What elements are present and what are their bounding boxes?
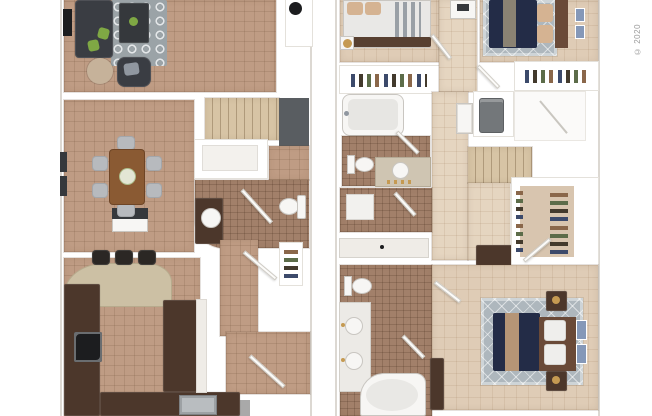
- wall-art-frame: [576, 320, 587, 340]
- appliance-pad: [347, 195, 373, 219]
- exterior-wall-edge-right: [310, 0, 312, 416]
- dresser-decor: [457, 4, 469, 11]
- side-table: [87, 58, 113, 84]
- counter-fixture-dot: [380, 245, 384, 249]
- vanity-faucets: [387, 180, 411, 184]
- sink-faucet: [341, 358, 345, 362]
- wall-art-frame: [60, 176, 67, 196]
- stair-void: [515, 92, 585, 140]
- kitchen-cabinet-right: [163, 300, 197, 392]
- first-floor-plan: [60, 0, 312, 416]
- closet-clothes-right: [550, 192, 568, 254]
- tub-faucet: [344, 111, 349, 116]
- kitchen-end-wall: [197, 300, 206, 392]
- entry-hall-floor: [220, 240, 258, 336]
- kitchen-sink: [180, 396, 216, 414]
- dining-chair: [118, 137, 134, 149]
- powder-sink: [201, 208, 221, 228]
- bed-runner: [503, 0, 516, 47]
- bed-pillow: [537, 4, 553, 22]
- bathroom2-toilet-bowl: [355, 157, 374, 172]
- exterior-wall-edge-left: [60, 0, 62, 416]
- armchair-pillow: [123, 62, 140, 76]
- bedroom2-closet-clothes: [351, 74, 427, 87]
- staircase-first-floor: [205, 98, 279, 140]
- master-bed-throw: [505, 313, 519, 371]
- closet-clothes-left: [516, 190, 523, 252]
- coat-closet-clothes: [284, 248, 298, 278]
- copyright-text: © 2020: [633, 4, 647, 56]
- dining-chair: [147, 157, 161, 170]
- exterior-wall-edge-left: [335, 0, 337, 416]
- bed-pillow: [544, 320, 566, 341]
- pantry-shelves: [203, 146, 257, 170]
- table-centerpiece: [120, 169, 135, 184]
- counter-nook: [340, 239, 428, 257]
- second-floor-plan: [335, 0, 600, 416]
- bathroom2-sink: [392, 162, 409, 179]
- garden-tub-basin: [366, 379, 418, 411]
- bar-stool: [138, 250, 156, 265]
- wall-art-frame: [60, 152, 67, 172]
- hall-cabinet: [476, 245, 513, 266]
- nightstand-lamp: [552, 376, 560, 384]
- wall-art-frame: [575, 8, 585, 22]
- master-toilet-bowl: [352, 278, 372, 294]
- bed-foot-rail: [343, 37, 431, 47]
- ceiling-light: [289, 2, 302, 15]
- entry-floor: [226, 332, 310, 394]
- linen-cabinet: [456, 103, 473, 134]
- bed-pillow: [544, 344, 566, 365]
- bathroom2-toilet-tank: [347, 155, 355, 174]
- bedroom3-door: [477, 65, 501, 89]
- dining-chair: [93, 184, 107, 197]
- master-toilet-tank: [344, 276, 352, 296]
- bar-stool: [115, 250, 133, 265]
- bedroom3-closet-clothes: [525, 70, 589, 83]
- dining-chair: [118, 204, 134, 216]
- exterior-wall-edge-right: [598, 0, 600, 416]
- table-plant: [129, 17, 138, 26]
- master-sink: [345, 317, 363, 335]
- floorplan-image: © 2020: [0, 0, 652, 416]
- master-dresser: [430, 358, 444, 410]
- powder-toilet-tank: [297, 195, 306, 219]
- bed-pillow: [347, 2, 363, 15]
- wall-art-frame: [576, 344, 587, 364]
- nightstand-lamp: [552, 296, 560, 304]
- bar-stool: [92, 250, 110, 265]
- stove: [74, 332, 102, 362]
- master-sink: [345, 352, 363, 370]
- dining-chair: [93, 157, 107, 170]
- water-heater: [480, 99, 503, 132]
- wall-art-frame: [575, 25, 585, 39]
- stair-accent-wall: [279, 98, 309, 146]
- powder-toilet-bowl: [279, 198, 299, 215]
- dining-chair: [147, 184, 161, 197]
- bed-pillow: [537, 25, 553, 43]
- sink-faucet: [341, 323, 345, 327]
- bedroom3-headboard: [555, 0, 568, 48]
- kitchen-cabinet-bottom: [100, 392, 240, 416]
- bed-pillow: [365, 2, 381, 15]
- bathtub-basin: [348, 99, 398, 130]
- hallway-floor: [269, 146, 309, 180]
- tv: [63, 9, 72, 36]
- bedroom2-lamp: [343, 39, 352, 48]
